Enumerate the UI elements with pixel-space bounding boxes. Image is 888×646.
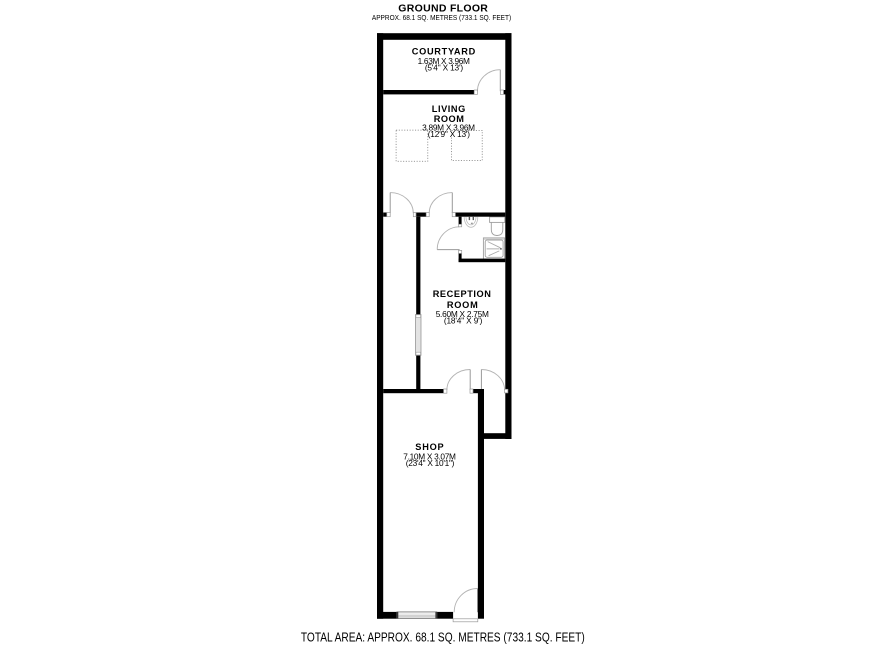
svg-text:(12'9" X 13'): (12'9" X 13') [428, 129, 471, 139]
svg-text:(5'4" X 13'): (5'4" X 13') [425, 63, 464, 73]
svg-text:RECEPTION: RECEPTION [433, 289, 492, 299]
svg-text:(23'4" X 10'1"): (23'4" X 10'1") [406, 458, 455, 468]
svg-text:LIVING: LIVING [432, 104, 466, 114]
svg-text:SHOP: SHOP [415, 442, 443, 452]
svg-text:(18'4" X 9'): (18'4" X 9') [444, 316, 483, 326]
svg-text:COURTYARD: COURTYARD [412, 47, 476, 57]
svg-text:GROUND FLOOR: GROUND FLOOR [398, 3, 488, 15]
svg-text:TOTAL AREA: APPROX. 68.1 SQ. M: TOTAL AREA: APPROX. 68.1 SQ. METRES (733… [301, 630, 585, 645]
svg-text:APPROX. 68.1 SQ. METRES (733.1: APPROX. 68.1 SQ. METRES (733.1 SQ. FEET) [372, 15, 511, 22]
